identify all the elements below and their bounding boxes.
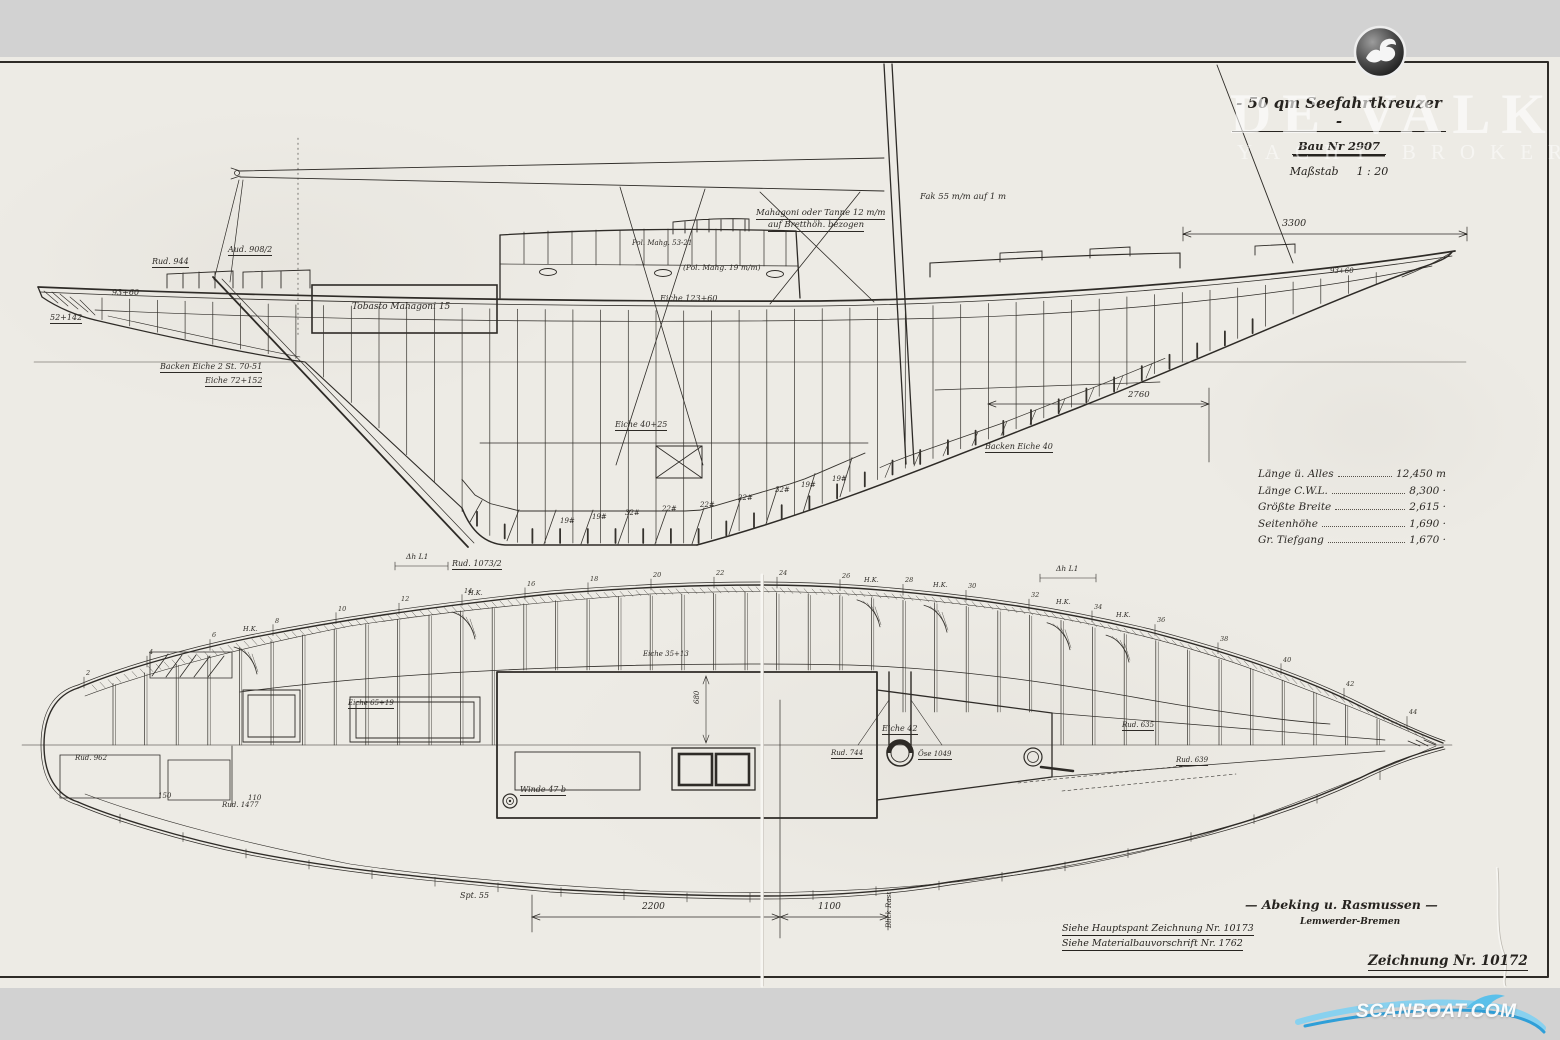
annotation-label: Fak 55 m/m auf 1 m <box>920 193 1006 202</box>
annotation-label: 19# <box>560 518 575 525</box>
spec-value: 1,690 · <box>1409 518 1446 530</box>
scanned-yacht-drawing: - 50 qm Seefahrtkreuzer - Bau Nr 2907 Ma… <box>0 0 1560 1040</box>
plan-frame-number: 4 <box>149 648 153 656</box>
plan-frame-number: 16 <box>527 580 535 588</box>
drawing-title: - 50 qm Seefahrtkreuzer - <box>1232 94 1446 132</box>
annotation-label: Eiche 40+25 <box>615 421 667 431</box>
annotation-label: H.K. <box>243 626 258 633</box>
annotation-label: Blick Rast <box>886 892 893 928</box>
spec-label: Länge C.W.L. <box>1258 485 1328 497</box>
plan-frame-number: 44 <box>1409 708 1417 716</box>
scale-value: 1 : 20 <box>1357 165 1389 178</box>
annotation-label: 2760 <box>1128 391 1150 400</box>
skylight-plan <box>672 748 755 790</box>
plan-frame-number: 22 <box>716 569 724 577</box>
spec-value: 1,670 · <box>1409 534 1446 546</box>
annotation-label: Backen Eiche 2 St. 70-51 <box>160 363 262 373</box>
plan-frame-number: 18 <box>590 575 598 583</box>
mast <box>884 64 914 464</box>
drawing-number: Zeichnung Nr. 10172 <box>1368 953 1528 971</box>
scanboat-watermark: SCANBOAT.COM <box>1356 1001 1516 1023</box>
annotation-label: (Pol. Mahg. 19 m/m) <box>683 264 761 272</box>
annotation-label: Aud. 908/2 <box>228 246 272 256</box>
spec-value: 8,300 · <box>1409 485 1446 497</box>
annotation-label: Öse 1049 <box>918 751 952 760</box>
spec-row: Seitenhöhe1,690 · <box>1258 518 1446 530</box>
plan-frame-number: 2 <box>86 669 90 677</box>
annotation-label: H.K. <box>864 577 879 584</box>
annotation-label: 32# <box>625 510 640 517</box>
build-number: Bau Nr 2907 <box>1292 139 1386 155</box>
builder-city: Lemwerder-Bremen <box>1300 917 1400 927</box>
generated-framing <box>84 272 1425 902</box>
plan-frame-number: 20 <box>653 571 661 579</box>
ref-hauptspant: Siehe Hauptspant Zeichnung Nr. 10173 <box>1062 923 1254 936</box>
annotation-label: 19# <box>832 476 847 483</box>
spec-label: Seitenhöhe <box>1258 518 1318 530</box>
annotation-label: 19# <box>801 482 816 489</box>
cleat <box>1041 767 1073 771</box>
plan-frame-number: 12 <box>401 595 409 603</box>
plan-view <box>22 582 1452 938</box>
plan-frame-number: 36 <box>1157 616 1165 624</box>
skylight-opening <box>150 652 232 678</box>
plan-frame-number: 10 <box>338 605 346 613</box>
annotation-label: Pol. Mahg. 53-21 <box>632 240 692 247</box>
spec-label: Größte Breite <box>1258 501 1331 513</box>
annotation-label: 22# <box>738 495 753 502</box>
annotation-label: Δh L1 <box>406 553 428 561</box>
scale-label: Maßstab <box>1290 165 1339 178</box>
boom <box>240 158 884 191</box>
dim-3300 <box>1183 227 1467 241</box>
annotation-label: 19# <box>592 514 607 521</box>
plan-frame-number: 14 <box>464 587 472 595</box>
plan-frame-number: 8 <box>275 617 279 625</box>
annotation-label: Rud. 962 <box>75 755 107 762</box>
annotation-label: Eiche 35+13 <box>643 651 689 658</box>
annotation-label: Rud. 944 <box>152 258 189 268</box>
title-block: - 50 qm Seefahrtkreuzer - Bau Nr 2907 Ma… <box>1232 94 1446 178</box>
annotation-label: Backen Eiche 40 <box>985 443 1053 453</box>
spec-row: Länge ü. Alles12,450 m <box>1258 468 1446 480</box>
annotation-label: Mahagoni oder Tanne 12 m/m <box>756 209 885 220</box>
annotation-label: 22# <box>662 506 677 513</box>
devalk-logo <box>1350 22 1410 82</box>
plan-frame-number: 42 <box>1346 680 1354 688</box>
annotation-label: 2200 <box>642 903 665 912</box>
annotation-label: 150 <box>158 793 171 800</box>
annotation-label: Eiche 42 <box>882 725 918 735</box>
annotation-label: Eiche 72+152 <box>205 377 262 387</box>
spec-value: 2,615 · <box>1409 501 1446 513</box>
annotation-label: H.K. <box>933 582 948 589</box>
plan-frame-number: 30 <box>968 582 976 590</box>
principal-dimensions: Länge ü. Alles12,450 mLänge C.W.L.8,300 … <box>1258 468 1446 551</box>
annotation-label: 93+60 <box>1330 268 1354 275</box>
annotation-label: 93+60 <box>112 289 139 297</box>
plan-frame-number: 38 <box>1220 635 1228 643</box>
plan-frame-number: 32 <box>1031 591 1039 599</box>
spec-row: Länge C.W.L.8,300 · <box>1258 485 1446 497</box>
annotation-label: H.K. <box>1056 599 1071 606</box>
annotation-label: Rud. 1073/2 <box>452 560 502 570</box>
annotation-label: 3300 <box>1282 219 1306 229</box>
annotation-label: Rud. 1477 <box>222 802 259 809</box>
skylight-profile <box>673 219 749 234</box>
spec-row: Größte Breite2,615 · <box>1258 501 1446 513</box>
annotation-label: 680 <box>694 691 701 704</box>
annotation-label: Eiche 123+60 <box>660 295 717 303</box>
plan-frame-number: 26 <box>842 572 850 580</box>
plan-frame-number: 34 <box>1094 603 1102 611</box>
annotation-label: Δh L1 <box>1056 565 1078 573</box>
spec-row: Gr. Tiefgang1,670 · <box>1258 534 1446 546</box>
plan-frame-number: 40 <box>1283 656 1291 664</box>
plan-frame-number: 28 <box>905 576 913 584</box>
ref-material: Siehe Materialbauvorschrift Nr. 1762 <box>1062 938 1243 951</box>
annotation-label: 32# <box>775 487 790 494</box>
annotation-label: 22# <box>700 502 715 509</box>
spec-label: Gr. Tiefgang <box>1258 534 1324 546</box>
annotation-label: Winde 47 b <box>520 786 566 796</box>
annotation-label: 1100 <box>818 903 841 912</box>
winch <box>503 794 517 808</box>
builder-name: — Abeking u. Rasmussen — Lemwerder-Breme… <box>1245 897 1438 927</box>
annotation-label: Tobasto Mahagoni 15 <box>352 303 450 312</box>
annotation-label: Rud. 635 <box>1122 722 1154 731</box>
annotation-label: Rud. 639 <box>1176 757 1208 766</box>
annotation-label: 110 <box>248 795 261 802</box>
annotation-label: auf Bretthöh. bezogen <box>768 221 864 232</box>
spec-value: 12,450 m <box>1396 468 1446 480</box>
annotation-label: Eiche 65+19 <box>348 700 394 709</box>
annotation-label: H.K. <box>1116 612 1131 619</box>
annotation-label: Rud. 744 <box>831 750 863 759</box>
annotation-label: 52+142 <box>50 314 82 324</box>
plan-frame-number: 6 <box>212 631 216 639</box>
mast-ring <box>887 740 913 766</box>
spec-label: Länge ü. Alles <box>1258 468 1334 480</box>
plan-frame-number: 24 <box>779 569 787 577</box>
annotation-label: Spt. 55 <box>460 892 489 900</box>
